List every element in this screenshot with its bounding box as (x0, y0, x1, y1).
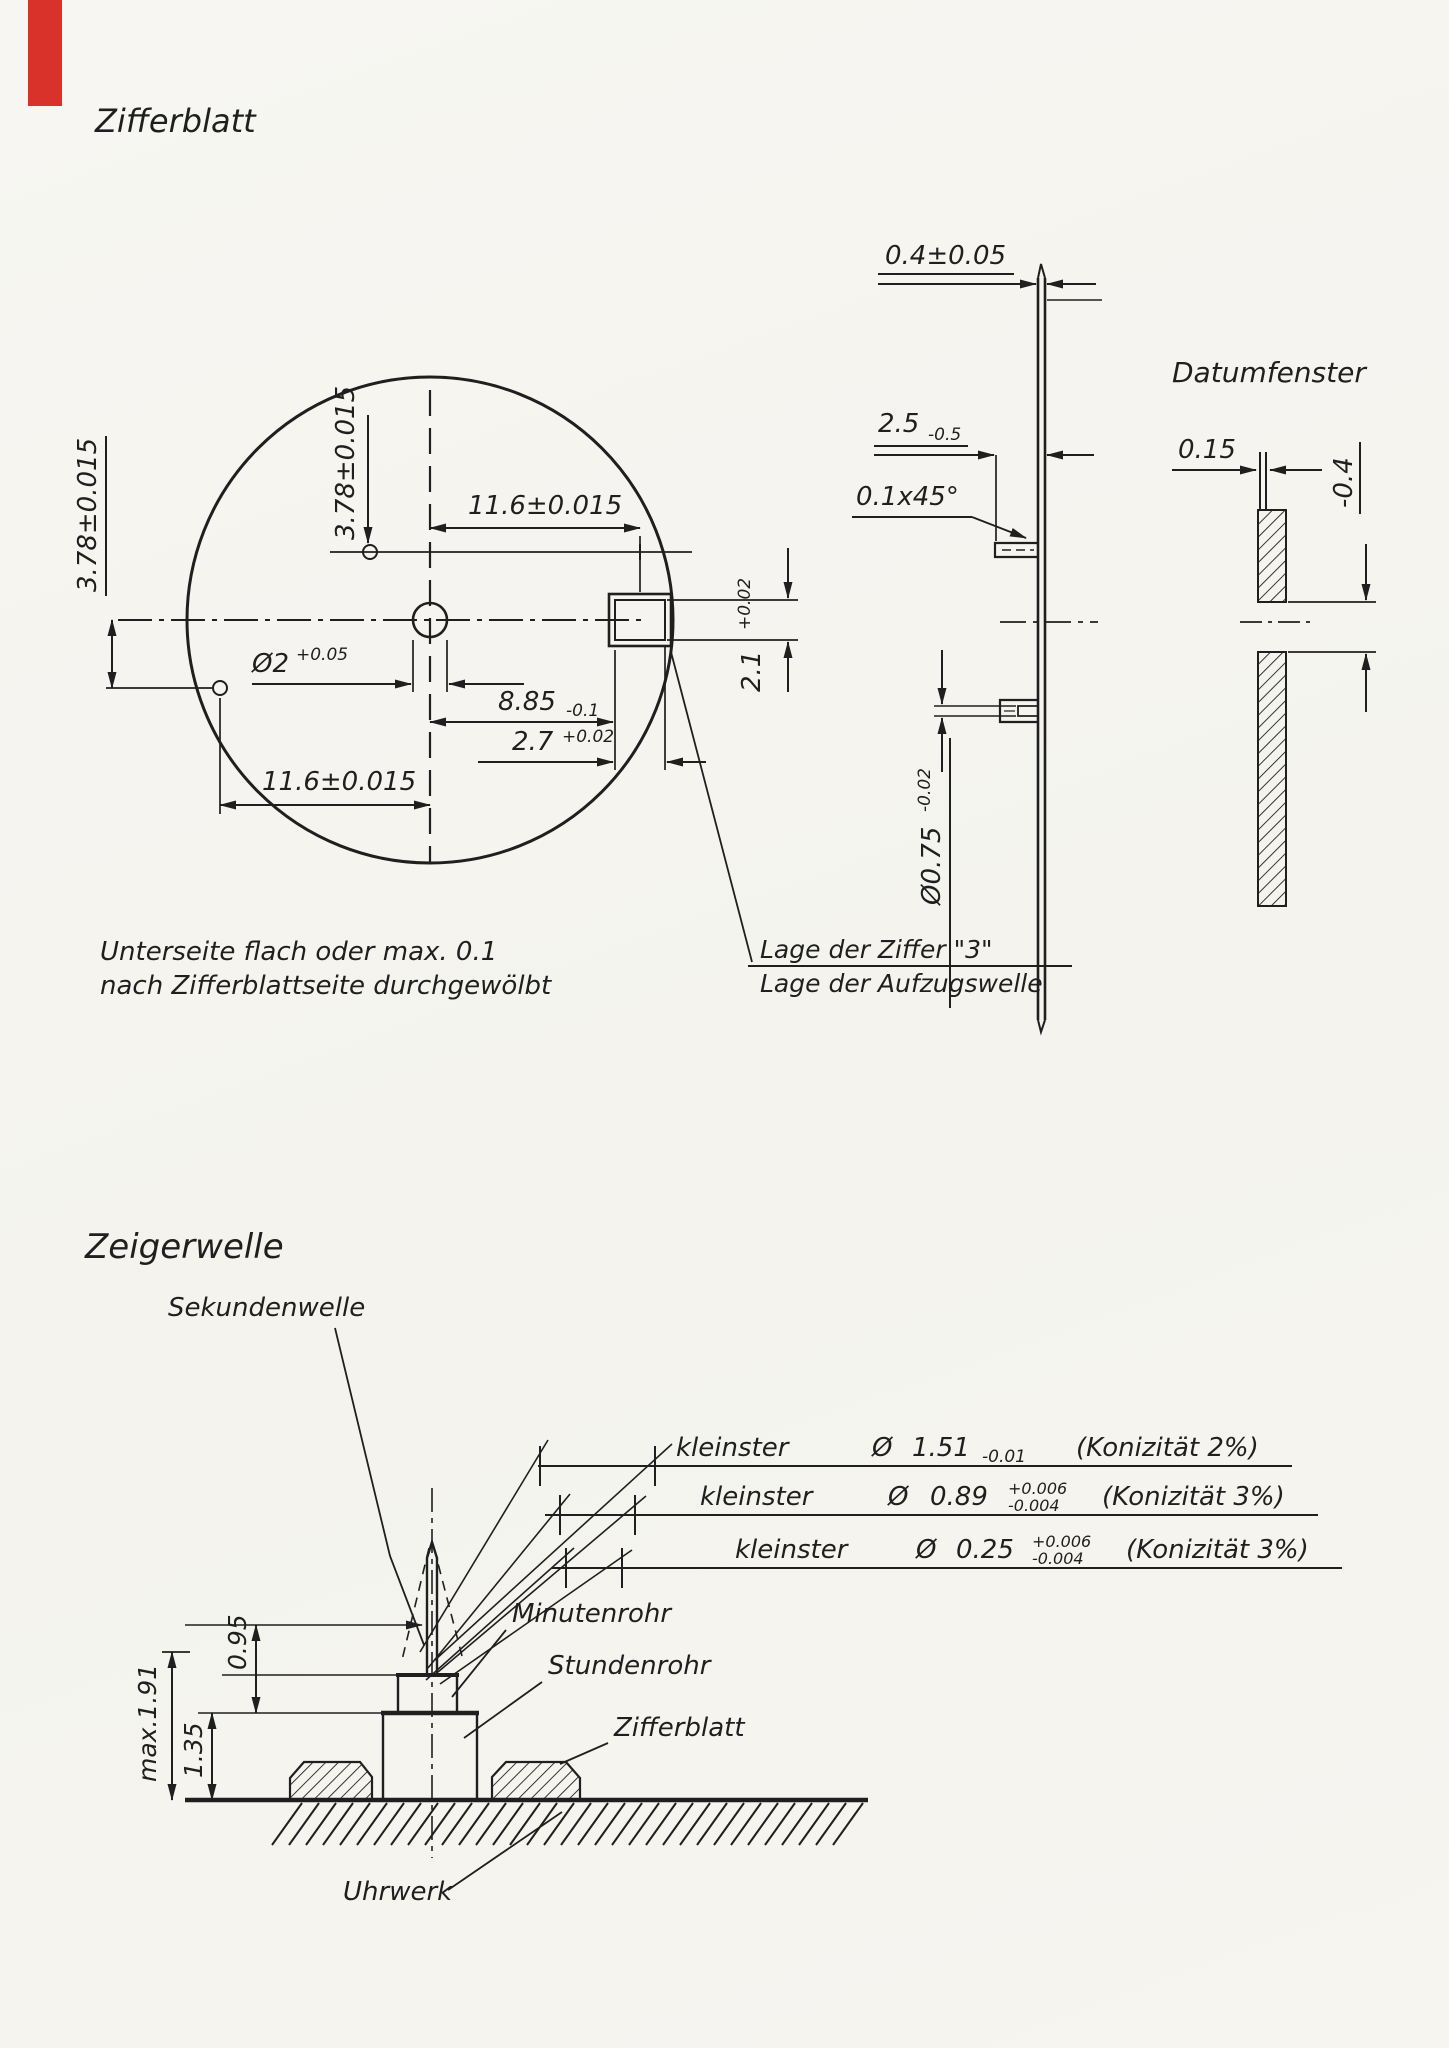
dim-window-width-tol: +0.02 (562, 727, 614, 747)
label-sekundenwelle: Sekundenwelle (168, 1293, 365, 1323)
dim-hour-tube-height: 1.35 (179, 1722, 208, 1778)
dim-total-height: max.1.91 (133, 1664, 162, 1782)
dim-hub-offset-tol: -0.5 (928, 425, 961, 445)
leader-stundenrohr (464, 1682, 542, 1738)
taper1-conicity: (Konizität 2%) (1076, 1433, 1259, 1463)
taper2-tol-lower: -0.004 (1008, 1496, 1060, 1515)
callout-position-numeral3: Lage der Ziffer "3" (760, 935, 993, 964)
dim-window-height-tol: +0.02 (735, 578, 755, 630)
dim-center-hole: Ø2 (251, 649, 289, 679)
dim-plate-thickness: 0.4±0.05 (885, 241, 1006, 271)
dim-stem-dia-tol: -0.02 (915, 768, 935, 812)
leader-sekundenwelle (335, 1328, 424, 1645)
taper3-conicity: (Konizität 3%) (1126, 1535, 1309, 1565)
taper3-prefix: kleinster (735, 1535, 850, 1565)
taper2-conicity: (Konizität 3%) (1102, 1482, 1285, 1512)
dim-center-hole-tol: +0.05 (296, 645, 348, 665)
dim-minute-tube-height: 0.95 (223, 1614, 252, 1670)
dial-plate-section (1038, 278, 1045, 1020)
taper1-dia-symbol: Ø (871, 1433, 894, 1463)
dial-section-right (492, 1762, 580, 1800)
note-underside-line2: nach Zifferblattseite durchgewölbt (100, 971, 552, 1001)
dim-window-offset: 8.85 (498, 687, 556, 717)
taper1-tol-lower: -0.01 (982, 1447, 1026, 1467)
label-zifferblatt: Zifferblatt (613, 1713, 745, 1743)
technical-drawing-sheet: Zifferblatt Ø2 +0.05 3.78±0.015 3.78±0.0… (0, 0, 1449, 2048)
dim-window-width: 2.7 (512, 727, 554, 757)
section-title-zeigerwelle: Zeigerwelle (84, 1227, 284, 1267)
dim-window-height: 2.1 (737, 651, 767, 692)
taper1-value: 1.51 (912, 1433, 970, 1463)
dim-stem-dia: Ø0.75 (917, 827, 947, 906)
dial-section-left (290, 1762, 372, 1800)
leader-uhrwerk (448, 1812, 562, 1890)
dial-foot-lower (213, 681, 227, 695)
minute-tube (398, 1675, 457, 1713)
note-underside-line1: Unterseite flach oder max. 0.1 (100, 937, 497, 967)
dim-foot-top-vertical: 3.78±0.015 (331, 386, 361, 540)
section-title-zifferblatt: Zifferblatt (94, 102, 257, 140)
datumfenster-title: Datumfenster (1172, 356, 1367, 389)
dim-foot-horizontal: 11.6±0.015 (262, 767, 416, 797)
taper-extension-lines (402, 1440, 672, 1684)
dim-window-recess: -0.4 (1329, 457, 1359, 508)
movement-hatching (272, 1803, 863, 1845)
taper2-prefix: kleinster (700, 1482, 815, 1512)
dim-hub-offset: 2.5 (878, 409, 919, 439)
dial-front-view: Ø2 +0.05 3.78±0.015 3.78±0.015 11.6±0.01… (73, 377, 1072, 1001)
hand-shaft-view: kleinster Ø 1.51 -0.01 (Konizität 2%) kl… (133, 1293, 1342, 1907)
label-uhrwerk: Uhrwerk (343, 1877, 453, 1907)
dial-side-view: 0.4±0.05 2.5 -0.5 0.1x45° Ø0.75 -0.02 (852, 241, 1102, 1032)
datumfenster-detail-view: Datumfenster 0.15 -0.4 (1172, 356, 1376, 906)
taper1-prefix: kleinster (676, 1433, 791, 1463)
dim-date-disc-clearance: 0.15 (1178, 435, 1236, 465)
dim-window-offset-tol: -0.1 (566, 701, 599, 721)
hour-tube (383, 1713, 477, 1800)
leader-minutenrohr (452, 1630, 506, 1697)
taper2-value: 0.89 (930, 1482, 988, 1512)
label-stundenrohr: Stundenrohr (548, 1651, 713, 1681)
callout-leader (671, 652, 752, 962)
taper3-tol-lower: -0.004 (1032, 1549, 1084, 1568)
leader-zifferblatt (560, 1743, 608, 1764)
label-minutenrohr: Minutenrohr (512, 1599, 673, 1629)
dial-section-hatched-lower (1258, 652, 1286, 906)
dial-section-hatched-upper (1258, 510, 1286, 602)
taper3-value: 0.25 (956, 1535, 1014, 1565)
callout-position-winding-stem: Lage der Aufzugswelle (760, 969, 1043, 998)
dim-window-horizontal: 11.6±0.015 (468, 491, 622, 521)
taper2-dia-symbol: Ø (887, 1482, 910, 1512)
red-scan-tab (28, 0, 62, 106)
dim-chamfer: 0.1x45° (856, 482, 959, 512)
taper3-dia-symbol: Ø (915, 1535, 938, 1565)
dim-foot-left-vertical: 3.78±0.015 (73, 438, 103, 592)
